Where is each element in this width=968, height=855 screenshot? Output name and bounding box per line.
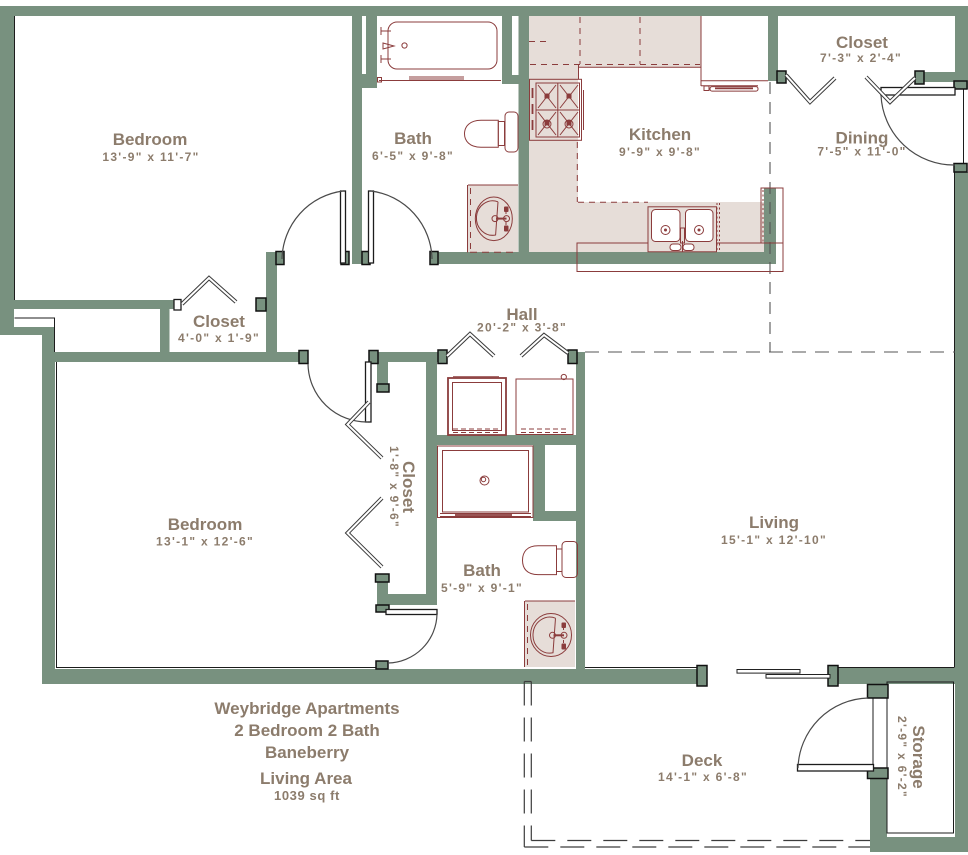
svg-text:Deck: Deck [682,751,723,770]
svg-text:5'-9" x 9'-1": 5'-9" x 9'-1" [441,581,523,595]
svg-text:13'-9" x 11'-7": 13'-9" x 11'-7" [102,150,199,164]
svg-text:7'-3" x 2'-4": 7'-3" x 2'-4" [820,51,902,65]
svg-text:20'-2" x 3'-8": 20'-2" x 3'-8" [477,321,567,335]
svg-text:Living Area: Living Area [260,769,352,788]
svg-text:Storage: Storage [909,725,928,788]
svg-text:15'-1" x 12'-10": 15'-1" x 12'-10" [721,533,827,547]
svg-text:Living: Living [749,513,799,532]
svg-text:Weybridge Apartments: Weybridge Apartments [214,699,399,718]
svg-text:Closet: Closet [193,312,245,331]
svg-text:2'-9" x 6'-2": 2'-9" x 6'-2" [895,716,909,798]
svg-text:13'-1" x 12'-6": 13'-1" x 12'-6" [156,535,254,549]
svg-text:Kitchen: Kitchen [629,125,691,144]
svg-text:Bath: Bath [463,561,501,580]
svg-text:2 Bedroom 2 Bath: 2 Bedroom 2 Bath [234,721,379,740]
svg-text:1'-8" x 9'-6": 1'-8" x 9'-6" [387,446,401,528]
svg-text:1039 sq ft: 1039 sq ft [274,788,340,803]
svg-text:Bedroom: Bedroom [168,515,243,534]
svg-text:7'-5" x 11'-0": 7'-5" x 11'-0" [817,145,906,159]
svg-text:Bedroom: Bedroom [113,130,188,149]
svg-text:6'-5" x 9'-8": 6'-5" x 9'-8" [372,149,454,163]
svg-text:Baneberry: Baneberry [265,743,350,762]
svg-text:Bath: Bath [394,129,432,148]
svg-text:4'-0" x 1'-9": 4'-0" x 1'-9" [178,331,260,345]
svg-text:14'-1" x 6'-8": 14'-1" x 6'-8" [658,770,748,784]
svg-text:9'-9" x 9'-8": 9'-9" x 9'-8" [619,145,701,159]
svg-text:Closet: Closet [836,33,888,52]
